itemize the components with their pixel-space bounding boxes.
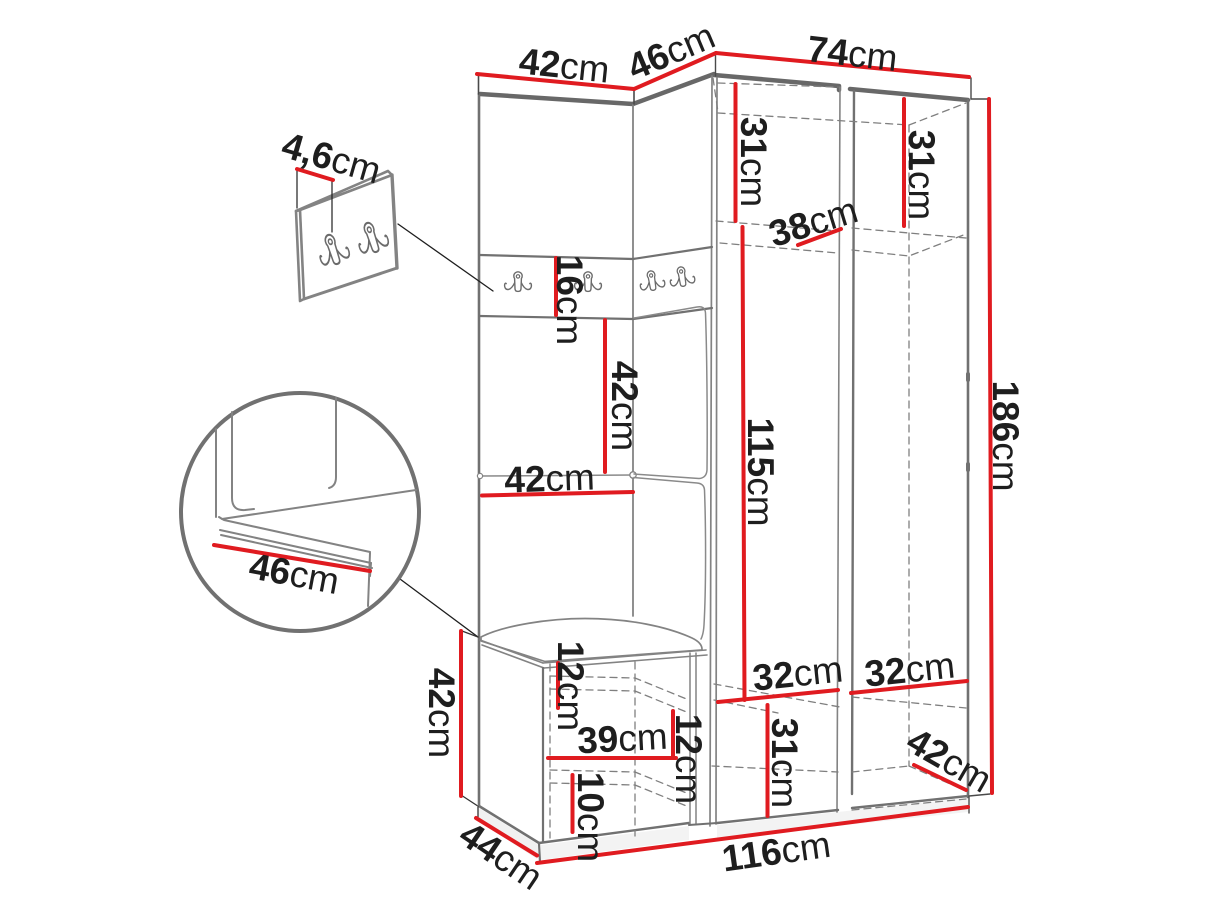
svg-text:31cm: 31cm (764, 718, 805, 808)
svg-text:186cm: 186cm (985, 380, 1026, 491)
svg-text:31cm: 31cm (901, 130, 942, 220)
svg-text:31cm: 31cm (733, 117, 774, 207)
svg-text:12cm: 12cm (668, 714, 709, 804)
svg-text:12cm: 12cm (550, 641, 591, 731)
svg-text:39cm: 39cm (576, 716, 669, 762)
svg-text:42cm: 42cm (421, 668, 462, 758)
svg-text:42cm: 42cm (504, 456, 596, 500)
svg-text:42cm: 42cm (604, 361, 645, 451)
svg-text:16cm: 16cm (549, 255, 590, 345)
svg-text:115cm: 115cm (740, 417, 781, 526)
svg-text:10cm: 10cm (570, 772, 611, 862)
